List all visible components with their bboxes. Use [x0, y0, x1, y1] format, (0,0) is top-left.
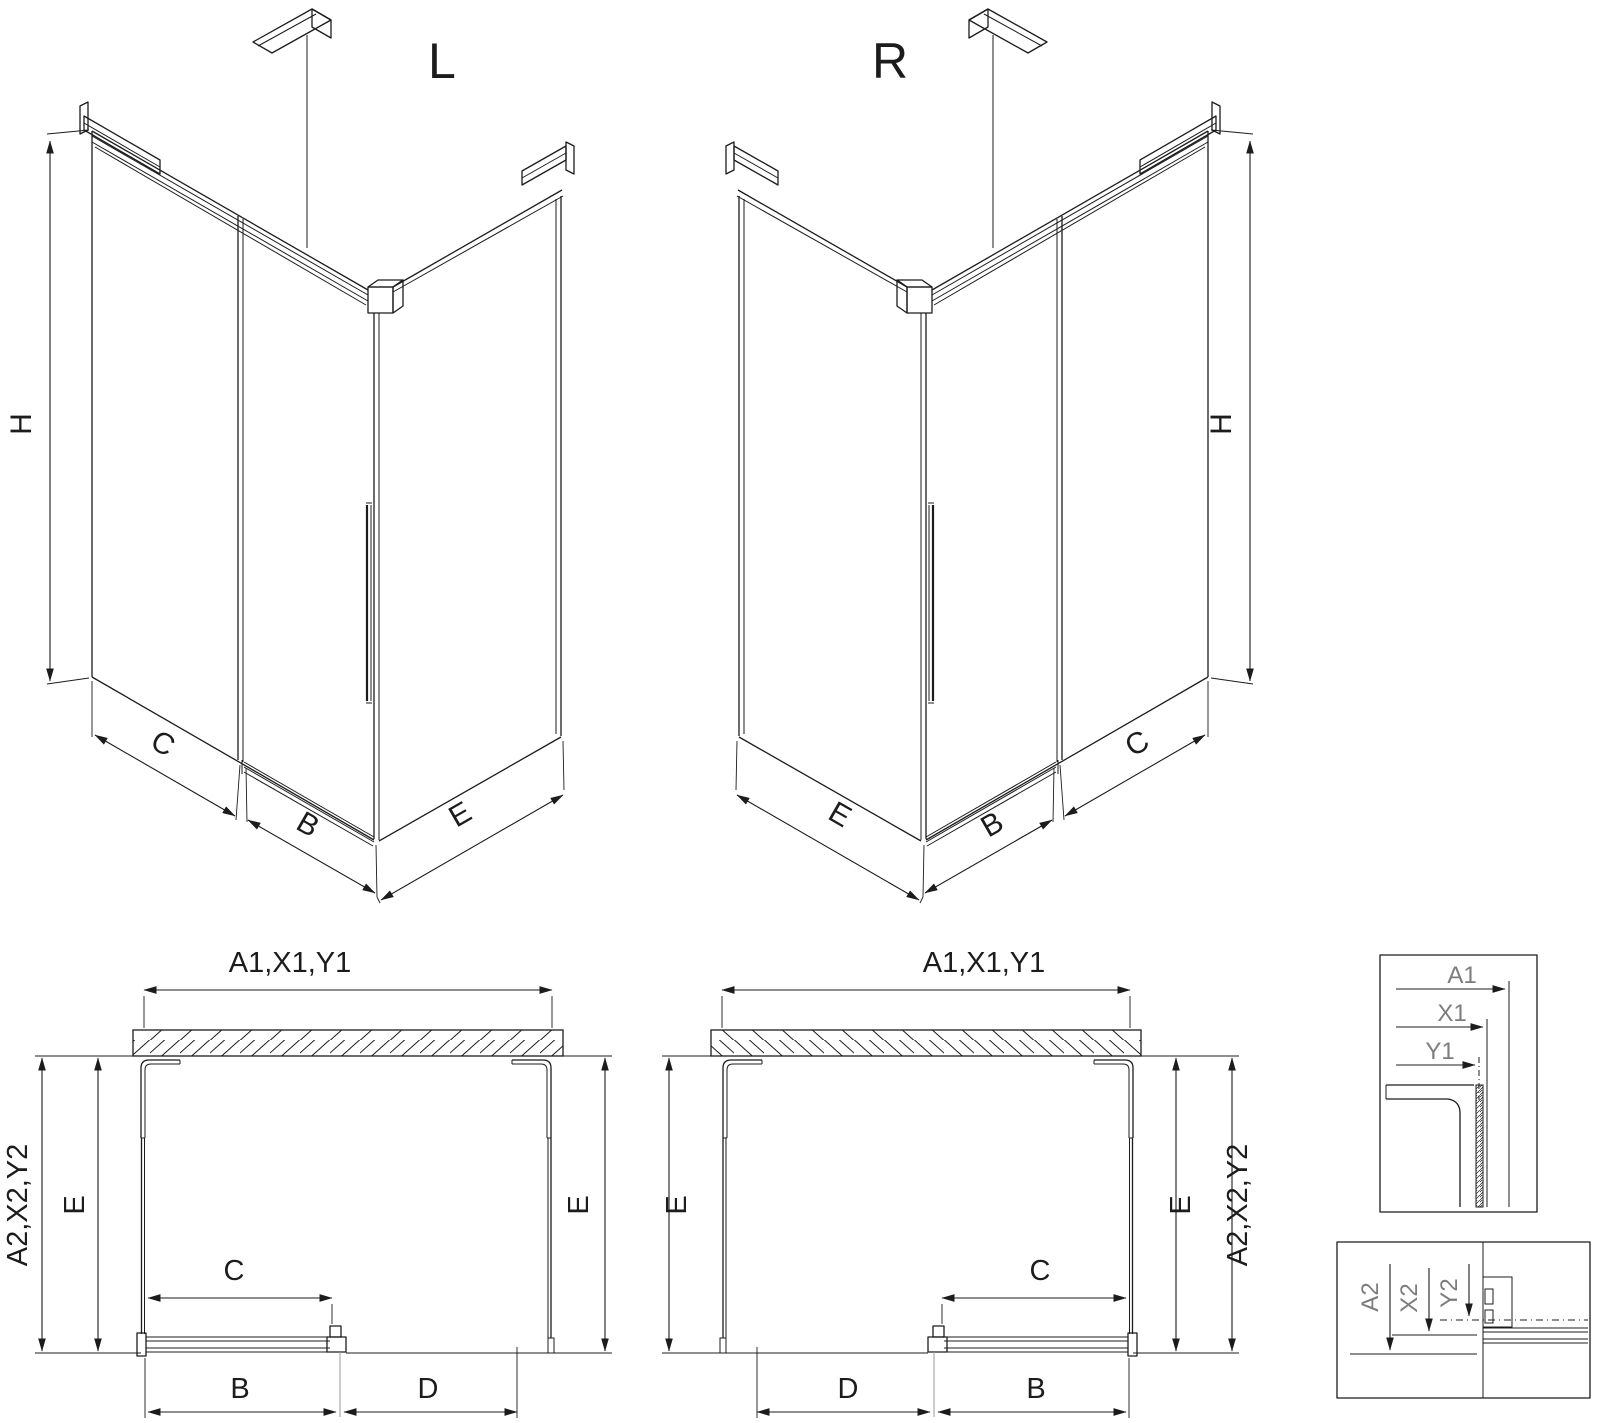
iso-view-right: R H C B E [726, 9, 1253, 903]
detail-view-bottom: A2 X2 Y2 [1337, 1242, 1590, 1398]
glass-section [1476, 1085, 1483, 1207]
plan-right-dim-b: B [1026, 1373, 1045, 1405]
detail-label-a1: A1 [1447, 962, 1476, 989]
plan-left-dim-c: C [224, 1255, 245, 1287]
detail-label-y1: Y1 [1425, 1038, 1454, 1065]
detail-label-a2: A2 [1357, 1282, 1384, 1311]
plan-left-dim-top: A1,X1,Y1 [229, 947, 352, 979]
detail-view-top: A1 X1 Y1 [1380, 955, 1537, 1212]
iso-left-title: L [428, 33, 456, 89]
roller-upper [1485, 1289, 1493, 1304]
plan-right-dim-c: C [1030, 1255, 1051, 1287]
detail-label-x1: X1 [1437, 1000, 1466, 1027]
plan-right-dim-d: D [838, 1373, 859, 1405]
plan-right-dim-e-left: E [661, 1195, 693, 1214]
roller-lower [1485, 1310, 1493, 1323]
detail-label-x2: X2 [1396, 1283, 1423, 1312]
plan-view-right: A1,X1,Y1 A2,X2,Y2 E E C B D [661, 947, 1254, 1418]
detail-label-y2: Y2 [1436, 1278, 1463, 1307]
plan-right-dim-outer: A2,X2,Y2 [1222, 1144, 1254, 1267]
plan-left-dim-d: D [418, 1373, 439, 1405]
plan-right-dim-top: A1,X1,Y1 [923, 947, 1046, 979]
iso-right-title: R [872, 33, 908, 89]
plan-left-dim-e-left: E [59, 1195, 91, 1214]
dim-label-door-left: B [291, 805, 325, 844]
dim-label-back-left: C [145, 724, 180, 763]
detail-bottom-profile [1483, 1277, 1588, 1343]
technical-drawing-canvas: L H C B E R H C B E A1,X1,Y1 A2,X2,Y2 E … [0, 0, 1600, 1423]
plan-right-dim-e-right: E [1165, 1195, 1197, 1214]
dim-label-height-left: H [5, 413, 38, 435]
dim-label-back-right: C [1120, 724, 1155, 763]
plan-left-dim-e-right: E [563, 1195, 595, 1214]
iso-view-left: L H C B E [5, 9, 574, 903]
dim-label-door-right: B [975, 805, 1009, 844]
plan-left-dim-b: B [230, 1373, 249, 1405]
detail-top-profile [1386, 1085, 1483, 1207]
plan-left-dim-outer: A2,X2,Y2 [2, 1144, 34, 1267]
detail-top-frame [1380, 955, 1537, 1212]
plan-view-left: A1,X1,Y1 A2,X2,Y2 E E C B D [2, 947, 612, 1418]
dim-label-height-right: H [1205, 413, 1238, 435]
